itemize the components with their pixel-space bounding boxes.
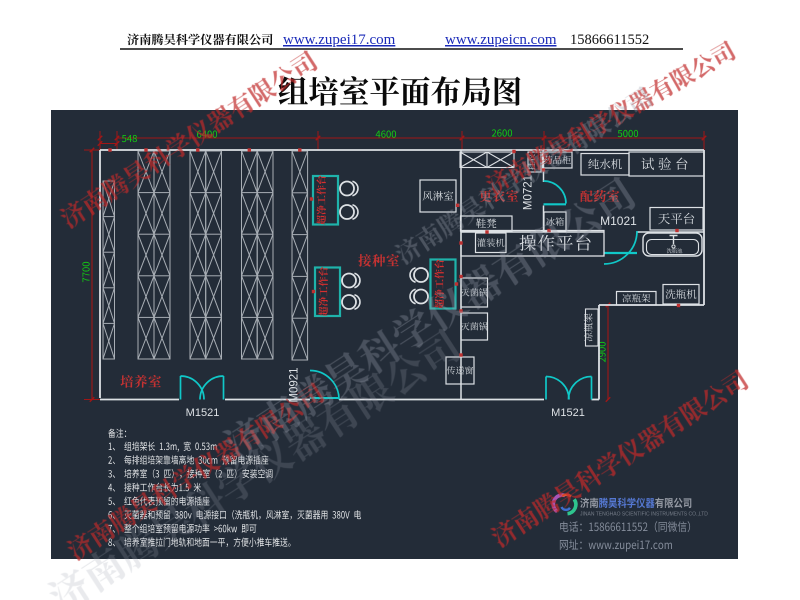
svg-text:www.zupeicn.com: www.zupeicn.com — [445, 32, 557, 48]
svg-text:M1521: M1521 — [551, 407, 585, 419]
svg-text:M1021: M1021 — [600, 214, 637, 228]
svg-text:15866611552: 15866611552 — [570, 32, 649, 48]
svg-text:JINAN TENGHAO SCIENTIFIC INSTR: JINAN TENGHAO SCIENTIFIC INSTRUMENTS CO.… — [580, 512, 708, 518]
svg-text:M1521: M1521 — [186, 407, 220, 419]
svg-text:www.zupei17.com: www.zupei17.com — [283, 32, 396, 48]
